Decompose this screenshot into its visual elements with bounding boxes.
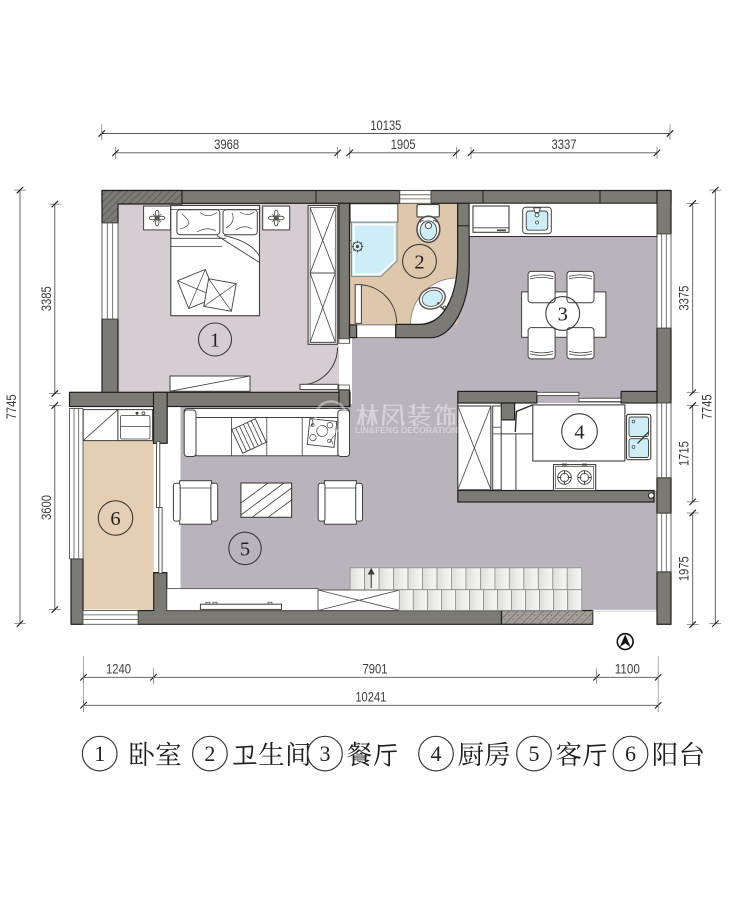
svg-text:3968: 3968: [214, 137, 239, 152]
svg-text:5: 5: [240, 538, 250, 560]
svg-text:4: 4: [431, 741, 442, 766]
svg-text:1240: 1240: [106, 661, 131, 676]
svg-text:1905: 1905: [391, 137, 416, 152]
svg-text:1975: 1975: [677, 556, 692, 581]
svg-text:2: 2: [204, 741, 215, 766]
svg-text:5: 5: [529, 741, 540, 766]
svg-text:1715: 1715: [677, 441, 692, 466]
svg-text:3: 3: [320, 741, 331, 766]
svg-text:7745: 7745: [699, 394, 714, 419]
svg-text:3: 3: [558, 303, 568, 325]
svg-text:10135: 10135: [370, 118, 401, 133]
svg-text:3385: 3385: [39, 286, 54, 311]
svg-text:10241: 10241: [355, 690, 386, 705]
svg-text:7745: 7745: [4, 394, 19, 419]
svg-text:1: 1: [210, 329, 220, 351]
svg-text:1: 1: [94, 741, 105, 766]
svg-text:6: 6: [625, 741, 636, 766]
svg-text:3375: 3375: [677, 286, 692, 311]
svg-text:3600: 3600: [39, 495, 54, 520]
svg-text:LIN&FENG DECORATION: LIN&FENG DECORATION: [355, 426, 458, 435]
svg-text:7901: 7901: [363, 661, 388, 676]
svg-text:6: 6: [110, 508, 120, 530]
svg-text:3337: 3337: [552, 137, 577, 152]
svg-text:4: 4: [574, 421, 584, 443]
svg-text:2: 2: [414, 251, 424, 273]
svg-text:1100: 1100: [615, 661, 640, 676]
